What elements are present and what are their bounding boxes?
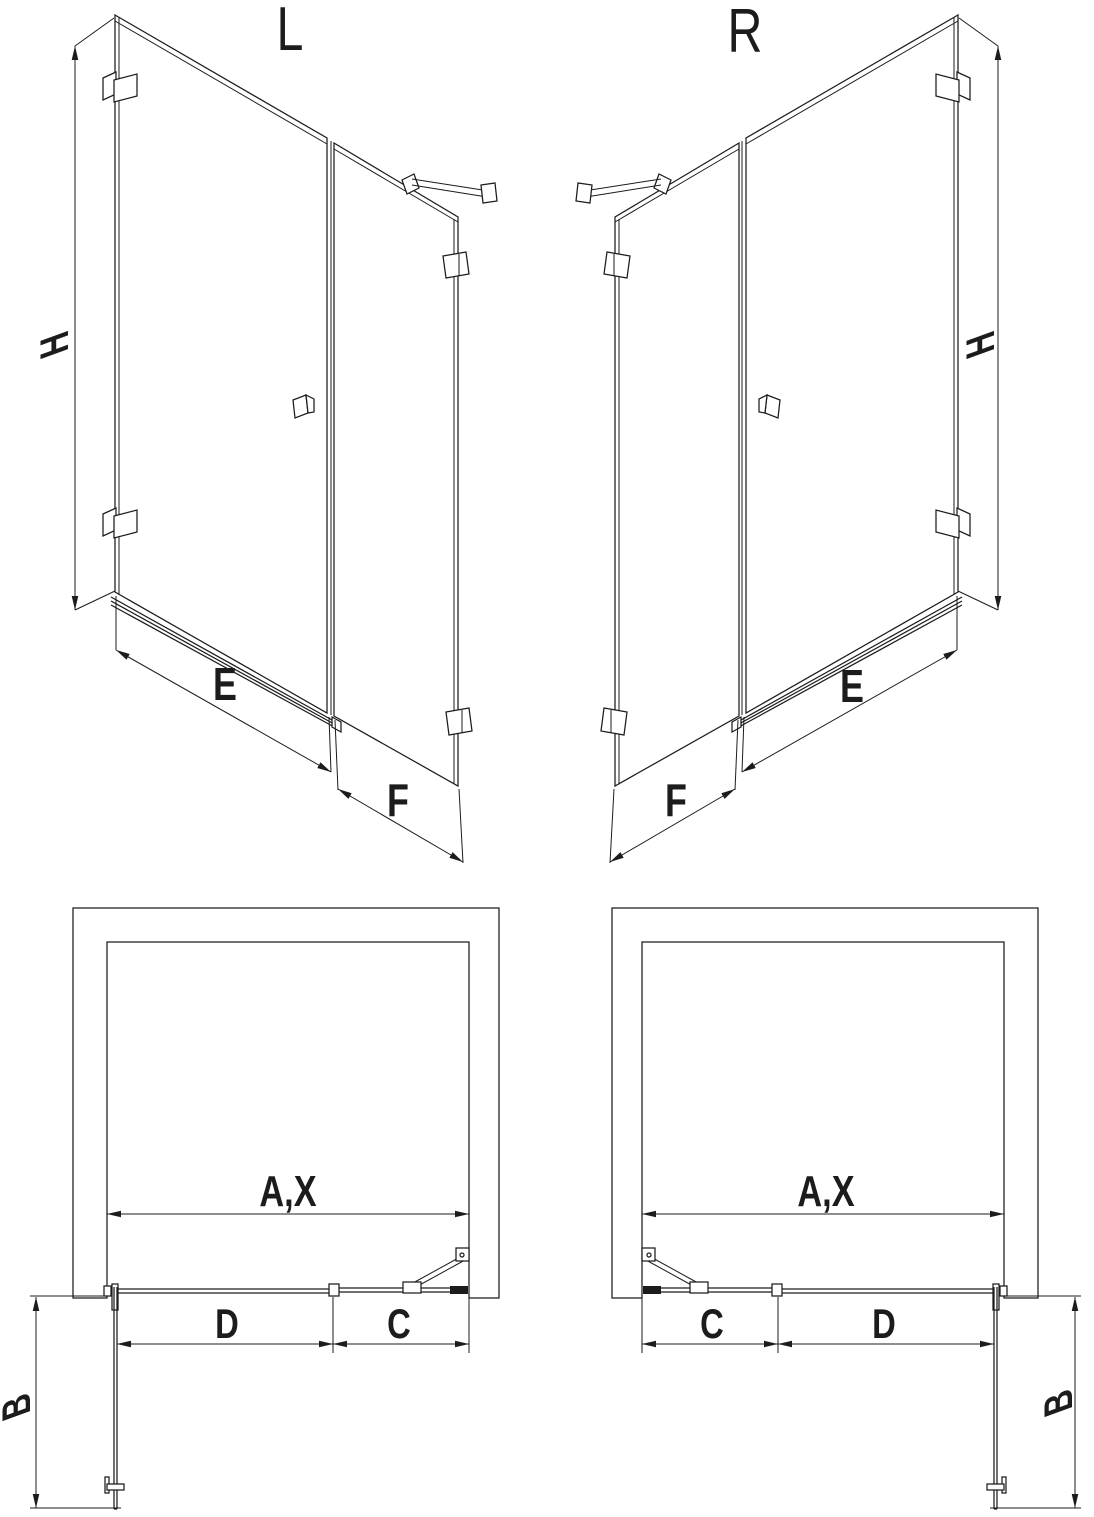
- support-bar-wall-bracket: [481, 183, 497, 203]
- dim-label-e-left: E: [213, 659, 237, 710]
- view-label-left: L: [277, 0, 304, 63]
- wall-clamp-top: [443, 252, 469, 278]
- dim-label-c-left: C: [387, 1300, 411, 1347]
- plan-support-wall-bracket: [456, 1248, 469, 1261]
- diagram-canvas: L R H H E F E F A,X A,X D C C D B B: [0, 0, 1094, 1517]
- wall-clamp-top-plate: [443, 252, 469, 278]
- plan-wall-profile: [450, 1286, 468, 1294]
- wall-clamp-bottom-plate: [446, 708, 472, 735]
- technical-drawing-page: L R H H E F E F A,X A,X D C C D B B: [0, 0, 1094, 1517]
- dim-label-d-left: D: [215, 1300, 239, 1347]
- foot-bracket-bar: [107, 1484, 124, 1490]
- dim-label-d-right: D: [872, 1300, 896, 1347]
- view-label-right: R: [728, 0, 763, 65]
- plan-support-glass-clamp: [403, 1282, 421, 1293]
- dim-label-c-right: C: [700, 1300, 724, 1347]
- dim-label-opening-left: A,X: [259, 1167, 316, 1216]
- plan-hinge-block: [104, 1286, 111, 1296]
- plan-door-pivot: [329, 1284, 339, 1296]
- wall-clamp-bottom: [446, 708, 472, 735]
- dim-label-f-right: F: [665, 775, 687, 826]
- dim-label-opening-right: A,X: [797, 1167, 854, 1216]
- dim-label-e-right: E: [840, 661, 864, 712]
- dim-label-f-left: F: [387, 775, 409, 826]
